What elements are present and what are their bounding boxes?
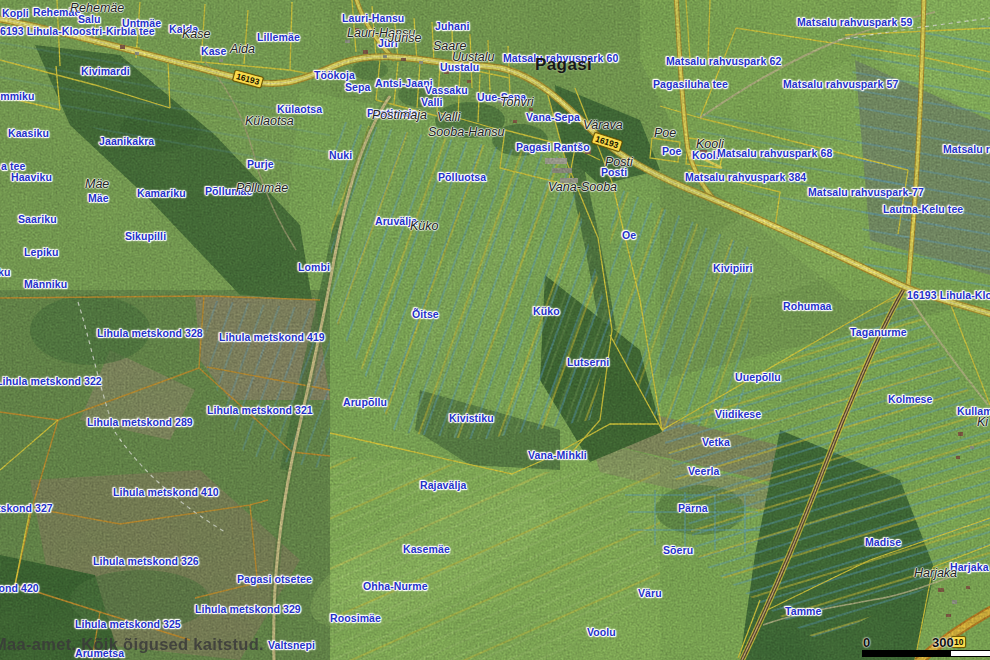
road-number-badge: 16193 xyxy=(232,69,264,88)
place-label: Kase xyxy=(182,28,211,41)
parcel-label: Valli xyxy=(421,97,443,108)
parcel-label: Matsalu rahvuspark 62 xyxy=(666,56,781,67)
parcel-label: Rohumaa xyxy=(783,301,832,312)
parcel-label: Külaotsa xyxy=(277,104,322,115)
parcel-label: Vana-Mihkli xyxy=(528,450,587,461)
parcel-label: Lauri-Hansu xyxy=(342,13,404,24)
map-viewport[interactable]: KopliRehemäeSalu16193 Lihula-Kloostri-Ki… xyxy=(0,0,990,660)
parcel-label: Taganurme xyxy=(850,327,907,338)
place-label: Kooli xyxy=(696,138,724,151)
parcel-label: Männiku xyxy=(24,279,67,290)
parcel-label: 16193 Lihula-Kloostri-Kirbla tee xyxy=(907,290,990,301)
parcel-label: Lautna-Kelu tee xyxy=(883,204,963,215)
parcel-label: Saariku xyxy=(18,214,57,225)
place-label: Jürise xyxy=(388,32,421,45)
parcel-label: Töökoja xyxy=(314,70,355,81)
place-label: Sooba-Hansu xyxy=(428,126,504,139)
parcel-label: Lihula metskond 420 xyxy=(0,583,39,594)
parcel-label: Viidikese xyxy=(715,409,761,420)
parcel-label: Lihula metskond 410 xyxy=(113,487,219,498)
parcel-label: Lihula metskond 322 xyxy=(0,376,102,387)
parcel-label: Kolmese xyxy=(888,394,932,405)
parcel-label: Kivimardi xyxy=(81,66,130,77)
parcel-label: Jaanikakra xyxy=(99,136,154,147)
parcel-label: Lihula metskond 329 xyxy=(195,604,301,615)
parcel-label: Kamariku xyxy=(137,188,186,199)
parcel-label: Lillemäe xyxy=(257,32,300,43)
parcel-label: Uuepõllu xyxy=(735,372,781,383)
parcel-label: Valtsnepi xyxy=(268,640,315,651)
place-label: Poe xyxy=(654,127,676,140)
place-label: Rehemäe xyxy=(70,2,124,15)
place-label: Värava xyxy=(583,119,623,132)
parcel-label: Lombi xyxy=(298,262,330,273)
place-label: Ki xyxy=(977,416,988,429)
parcel-label: Matsalu rahvuspark 384 xyxy=(685,172,806,183)
place-label: Küko xyxy=(410,220,439,233)
parcel-label: Vetka xyxy=(702,437,730,448)
parcel-label: Pärna xyxy=(678,503,708,514)
scale-bar: 0 300 xyxy=(862,635,990,659)
scale-bar-track xyxy=(862,650,990,657)
parcel-label: Lihula metskond 328 xyxy=(97,328,203,339)
place-label: Postimaja xyxy=(372,109,427,122)
parcel-label: Väru xyxy=(638,588,662,599)
parcel-label: Veerla xyxy=(688,466,720,477)
parcel-label: Lutserni xyxy=(567,357,609,368)
parcel-label: Matsalu rahvuspark-77 xyxy=(808,187,924,198)
parcel-label: Untmäe xyxy=(122,18,161,29)
parcel-label: Küko xyxy=(533,306,560,317)
parcel-label: Kopli xyxy=(2,8,29,19)
place-label: Külaotsa xyxy=(245,115,294,128)
parcel-label: Roosimäe xyxy=(330,613,381,624)
scale-start-label: 0 xyxy=(863,635,870,650)
parcel-label: Õitse xyxy=(412,309,439,320)
parcel-label: Sepa xyxy=(345,82,371,93)
parcel-label: Rajavälja xyxy=(420,480,466,491)
parcel-label: ku xyxy=(0,267,10,278)
parcel-label: Lihula metskond 327 xyxy=(0,503,53,514)
place-label: Valli xyxy=(437,111,460,124)
place-label: Aida xyxy=(230,43,255,56)
place-label: Uustalu xyxy=(452,51,494,64)
parcel-label: Purje xyxy=(247,159,274,170)
place-label: Posti xyxy=(605,156,633,169)
parcel-label: Lihula metskond 326 xyxy=(93,556,199,567)
place-label: Tohvri xyxy=(500,96,534,109)
parcel-label: Oe xyxy=(622,230,636,241)
place-label: Põllumäe xyxy=(236,182,288,195)
parcel-label: Kasemäe xyxy=(403,544,450,555)
parcel-label: Vassaku xyxy=(425,85,468,96)
parcel-label: Salu xyxy=(78,14,101,25)
scale-end-label: 300 xyxy=(932,635,954,650)
parcel-label: Matsalu rahvuspark xyxy=(943,144,990,155)
parcel-label: Sõeru xyxy=(663,545,693,556)
parcel-label: Vana-Sepa xyxy=(526,112,580,123)
parcel-label: Sikupilli xyxy=(125,231,166,242)
parcel-label: Arupõllu xyxy=(343,397,387,408)
parcel-label: Voolu xyxy=(587,627,616,638)
parcel-label: Lepiku xyxy=(24,247,58,258)
map-labels-layer: KopliRehemäeSalu16193 Lihula-Kloostri-Ki… xyxy=(0,0,990,660)
parcel-label: Kase xyxy=(201,46,227,57)
scale-bar-segment xyxy=(863,651,951,656)
place-label: Mäe xyxy=(85,178,109,191)
parcel-label: Matsalu rahvuspark 57 xyxy=(783,79,898,90)
parcel-label: Haaviku xyxy=(11,172,52,183)
parcel-label: Nõmmiku xyxy=(0,91,35,102)
parcel-label: Tamme xyxy=(785,606,822,617)
parcel-label: Kooli xyxy=(692,150,719,161)
parcel-label: Matsalu rahvuspark 68 xyxy=(717,148,832,159)
parcel-label: Lihula metskond 325 xyxy=(75,619,181,630)
parcel-label: Nuki xyxy=(329,150,352,161)
parcel-label: Pagasi otsetee xyxy=(237,574,312,585)
parcel-label: Matsalu rahvuspark 59 xyxy=(797,17,912,28)
parcel-label: Kivipiiri xyxy=(713,263,752,274)
parcel-label: Lihula metskond 419 xyxy=(219,332,325,343)
road-number-badge: 16193 xyxy=(591,132,623,153)
place-label: Harjaka xyxy=(914,567,957,580)
parcel-label: Pagasiluha tee xyxy=(653,79,728,90)
settlement-label: Pagasi xyxy=(535,56,592,73)
parcel-label: Poe xyxy=(662,146,682,157)
parcel-label: Lihula metskond 289 xyxy=(87,417,193,428)
parcel-label: Juhani xyxy=(435,21,469,32)
parcel-label: Lihula metskond 321 xyxy=(207,405,313,416)
place-label: Vana-Sooba xyxy=(548,181,617,194)
parcel-label: Kaasiku xyxy=(8,128,49,139)
parcel-label: Ohha-Nurme xyxy=(363,581,428,592)
parcel-label: Pagasi Rantšo xyxy=(516,142,590,153)
parcel-label: Kivistiku xyxy=(449,413,494,424)
parcel-label: Mäe xyxy=(88,193,109,204)
parcel-label: Põlluotsa xyxy=(438,172,486,183)
parcel-label: Madise xyxy=(865,537,901,548)
copyright-attribution: Maa-amet. Kõik õigused kaitstud. xyxy=(0,635,264,654)
parcel-label: a tee xyxy=(1,161,25,172)
